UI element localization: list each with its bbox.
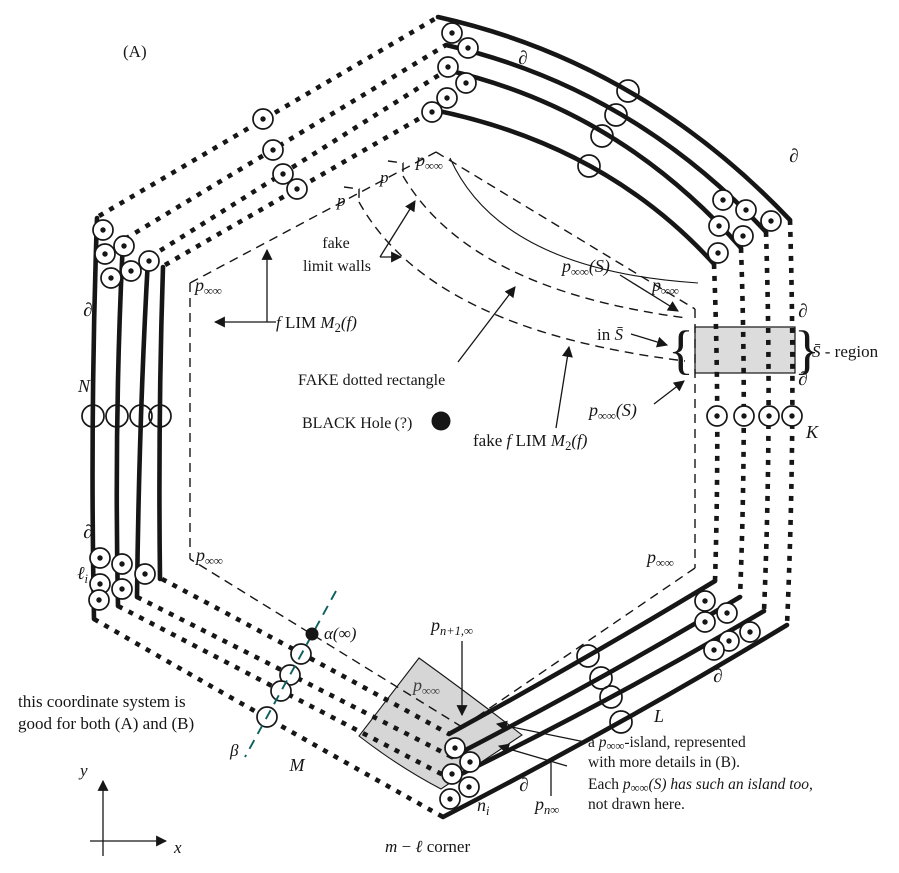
sbar-region-label: S̄ - region (812, 342, 879, 361)
beta-label: β (229, 741, 239, 760)
bead-dot (463, 80, 468, 85)
boundary-label: ∂ (519, 775, 528, 796)
m-ell-corner-label: m − ℓ corner (385, 837, 470, 856)
p: p (411, 675, 422, 695)
hexagon-bottomleft-edge (190, 559, 462, 727)
fake-limit-walls (344, 161, 687, 361)
alpha-infinity-point (306, 628, 319, 641)
bead-dot (768, 218, 773, 223)
p-infinf-label: p∞∞ (645, 547, 674, 570)
p: p (622, 776, 631, 793)
bead-dot (714, 413, 719, 418)
y-axis-label: y (78, 761, 88, 780)
bead-dot (702, 619, 707, 624)
bead-dot (702, 598, 707, 603)
p-sub: ∞∞ (571, 265, 589, 279)
island-note-line1: a p∞∞-island, represented (588, 734, 746, 753)
fake-rectangle-caption: FAKE dotted rectangle (298, 372, 445, 389)
p-sub: ∞∞ (425, 159, 443, 173)
t: -island, represented (624, 734, 746, 751)
bead-dot (741, 413, 746, 418)
p-infinf-S-label: p∞∞(S) (587, 400, 637, 423)
bead-dot (121, 243, 126, 248)
p: p (587, 400, 598, 420)
fake-walls-caption-line2: limit walls (303, 258, 371, 275)
arrow-fake-rectangle (458, 287, 515, 362)
M: M (550, 431, 566, 450)
arrow-pinfS-bottom (654, 381, 684, 404)
strand (117, 241, 123, 606)
bead-dot (715, 250, 720, 255)
bead-dot (260, 116, 265, 121)
bead-dot (449, 30, 454, 35)
bead-dot (445, 64, 450, 69)
bead-dot (740, 233, 745, 238)
strand (159, 267, 163, 579)
bead-dot (467, 759, 472, 764)
p-sub: ∞∞ (598, 409, 616, 423)
p: p (193, 275, 204, 295)
fake: fake (473, 431, 507, 450)
x-axis-label: x (173, 838, 182, 857)
n: n (477, 795, 486, 815)
f-arg: (f) (571, 431, 587, 450)
bead-dot (142, 571, 147, 576)
strand (438, 17, 790, 220)
island-note-line4: not drawn here. (588, 796, 685, 813)
flim-caption: f LIM M2(f) (276, 313, 357, 335)
bead-dot (146, 258, 151, 263)
strand (125, 45, 446, 239)
bead-dot (444, 95, 449, 100)
diagram-canvas: { } (A) ∂ ∂ ∂ ∂ ∂ ∂ ∂ ∂ N K L M ℓi ni p∞… (0, 0, 899, 873)
bead-dot (466, 784, 471, 789)
bead-dot (465, 45, 470, 50)
n-i-label: ni (477, 795, 490, 818)
p-infinf-label: p∞∞ (194, 545, 223, 568)
arrow-fake-flim (556, 347, 569, 428)
boundary-label: ∂ (83, 300, 92, 321)
f-arg: (f) (341, 313, 357, 332)
bead-dot (449, 771, 454, 776)
bead-dot (270, 147, 275, 152)
boundary-label: ∂ (83, 522, 92, 543)
p-ninf-label: pn∞ (533, 794, 559, 817)
in-sbar-label: in S̄ (597, 325, 624, 344)
p-sub: ∞∞ (204, 284, 222, 298)
black-hole-caption: BLACK Hole (?) (302, 415, 412, 432)
bead-dot (789, 413, 794, 418)
boundary-label: ∂ (789, 146, 798, 167)
arrow-fake-walls-upper (380, 201, 415, 257)
strand (447, 70, 741, 248)
hexagon-bottomright-edge (462, 568, 695, 727)
bead-dot (96, 597, 101, 602)
coord-note-line1: this coordinate system is (18, 692, 186, 711)
p-sub: n+1,∞ (440, 624, 473, 638)
dashed-hexagon (190, 152, 695, 727)
p: p (598, 734, 607, 751)
region-suffix: - region (821, 342, 879, 361)
fake-wall-curve (359, 202, 685, 361)
fake-wall-curve (403, 176, 687, 318)
bead-dot (716, 223, 721, 228)
bead-dot (711, 647, 716, 652)
island-note-line2: with more details in (B). (588, 754, 740, 771)
strand (137, 259, 148, 597)
boundary-label: ∂ (798, 301, 807, 322)
boundary-label: ∂ (798, 369, 807, 390)
S-arg: (S) (616, 400, 637, 421)
t: (S) has such an island too, (648, 776, 812, 793)
bead-dot (724, 610, 729, 615)
bead-dot (766, 413, 771, 418)
m: m (385, 837, 397, 856)
boundary-label: ∂ (518, 48, 527, 69)
p-sub: n∞ (544, 803, 559, 817)
necklace-N-label: N (77, 376, 91, 396)
ell-i-label: ℓi (77, 563, 89, 586)
black-hole-dot (432, 412, 451, 431)
bead-dot (294, 186, 299, 191)
p: p (533, 794, 544, 814)
sbar-left-brace: { (668, 320, 694, 380)
corner-word: corner (422, 837, 470, 856)
coord-note-line2: good for both (A) and (B) (18, 714, 194, 733)
p-wall-label: p (336, 191, 346, 210)
bead (271, 681, 291, 701)
fake-walls-caption-line1: fake (322, 235, 350, 252)
p-wall-label: p (379, 168, 389, 187)
p-sub: ∞∞ (631, 781, 649, 795)
p-n1inf-label: pn+1,∞ (429, 615, 473, 638)
ell-sub: i (85, 572, 89, 586)
p-infinf-S-label: p∞∞(S) (560, 256, 610, 279)
boundary-label: ∂ (713, 666, 722, 687)
necklace-L-label: L (653, 706, 664, 726)
p-sub: ∞∞ (656, 556, 674, 570)
bead-dot (119, 561, 124, 566)
minus: − (397, 837, 415, 856)
p-sub: ∞∞ (422, 684, 440, 698)
p: p (645, 547, 656, 567)
panel-label: (A) (123, 42, 147, 61)
lim: LIM (511, 431, 551, 450)
p-infinf-label: p∞∞ (193, 275, 222, 298)
bead-dot (447, 796, 452, 801)
S-bar: S̄ (614, 325, 623, 344)
bead-dot (128, 268, 133, 273)
p: p (414, 150, 425, 170)
p: p (194, 545, 205, 565)
right-dotted-strands (714, 220, 792, 625)
bead-dot (743, 207, 748, 212)
bead-dot (720, 197, 725, 202)
t: a (588, 734, 599, 751)
bead-dot (119, 586, 124, 591)
necklace-K-label: K (805, 422, 819, 442)
bead-dot (726, 638, 731, 643)
bead-dot (102, 251, 107, 256)
alpha-infinity-label: α(∞) (324, 624, 357, 643)
figure-A-diagram: { } (A) ∂ ∂ ∂ ∂ ∂ ∂ ∂ ∂ N K L M ℓi ni p∞… (0, 0, 899, 873)
p-infinf-label: p∞∞ (650, 275, 679, 298)
p: p (650, 275, 661, 295)
p: p (560, 256, 571, 276)
beta-line (245, 591, 336, 757)
ell: ℓ (415, 837, 422, 856)
bead-dot (100, 227, 105, 232)
t: Each (588, 776, 623, 793)
p-sub: ∞∞ (205, 554, 223, 568)
fake-flim-caption: fake f LIM M2(f) (473, 431, 588, 453)
bead-dot (108, 275, 113, 280)
bead-dot (747, 629, 752, 634)
island-note-line3: Each p∞∞(S) has such an island too, (588, 776, 813, 795)
arrow-in-sbar (631, 334, 667, 345)
p: p (429, 615, 440, 635)
p-sub: ∞∞ (607, 739, 625, 753)
p-sub: ∞∞ (661, 284, 679, 298)
in: in (597, 325, 614, 344)
bead-dot (429, 109, 434, 114)
bead-dot (97, 555, 102, 560)
M: M (319, 313, 335, 332)
lim: LIM (281, 313, 321, 332)
bead-dot (452, 745, 457, 750)
strand (434, 110, 714, 264)
necklace-M-label: M (289, 755, 306, 775)
bead-dot (97, 581, 102, 586)
bead-dot (280, 171, 285, 176)
n-sub: i (486, 804, 490, 818)
S-arg: (S) (589, 256, 610, 277)
